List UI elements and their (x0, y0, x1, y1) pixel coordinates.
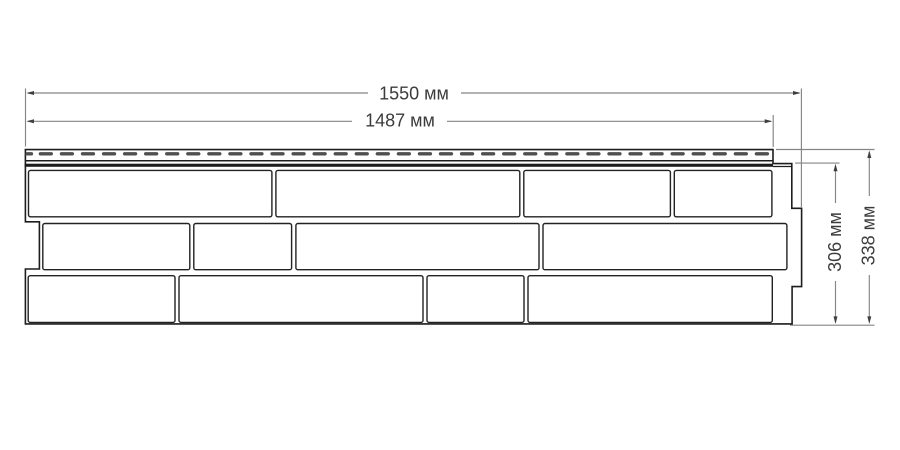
svg-text:1487 мм: 1487 мм (365, 111, 435, 131)
svg-text:1550 мм: 1550 мм (379, 84, 449, 104)
svg-text:306 мм: 306 мм (825, 212, 845, 272)
svg-text:338 мм: 338 мм (859, 206, 879, 266)
